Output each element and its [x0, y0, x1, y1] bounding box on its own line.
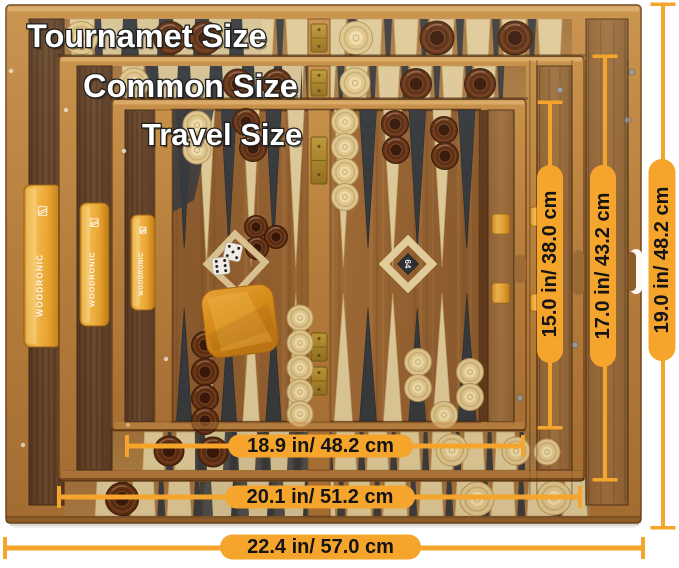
svg-text:19.0 in/ 48.2 cm: 19.0 in/ 48.2 cm [651, 187, 673, 334]
svg-text:20.1 in/ 51.2 cm: 20.1 in/ 51.2 cm [247, 486, 394, 508]
svg-text:Tournamet Size: Tournamet Size [27, 18, 267, 54]
svg-text:17.0 in/ 43.2 cm: 17.0 in/ 43.2 cm [592, 193, 614, 340]
svg-text:15.0 in/ 38.0 cm: 15.0 in/ 38.0 cm [539, 191, 561, 338]
svg-text:18.9 in/ 48.2 cm: 18.9 in/ 48.2 cm [247, 435, 394, 457]
svg-text:Travel Size: Travel Size [142, 117, 302, 152]
svg-text:22.4 in/ 57.0 cm: 22.4 in/ 57.0 cm [247, 536, 394, 558]
svg-text:Common Size: Common Size [83, 68, 298, 104]
